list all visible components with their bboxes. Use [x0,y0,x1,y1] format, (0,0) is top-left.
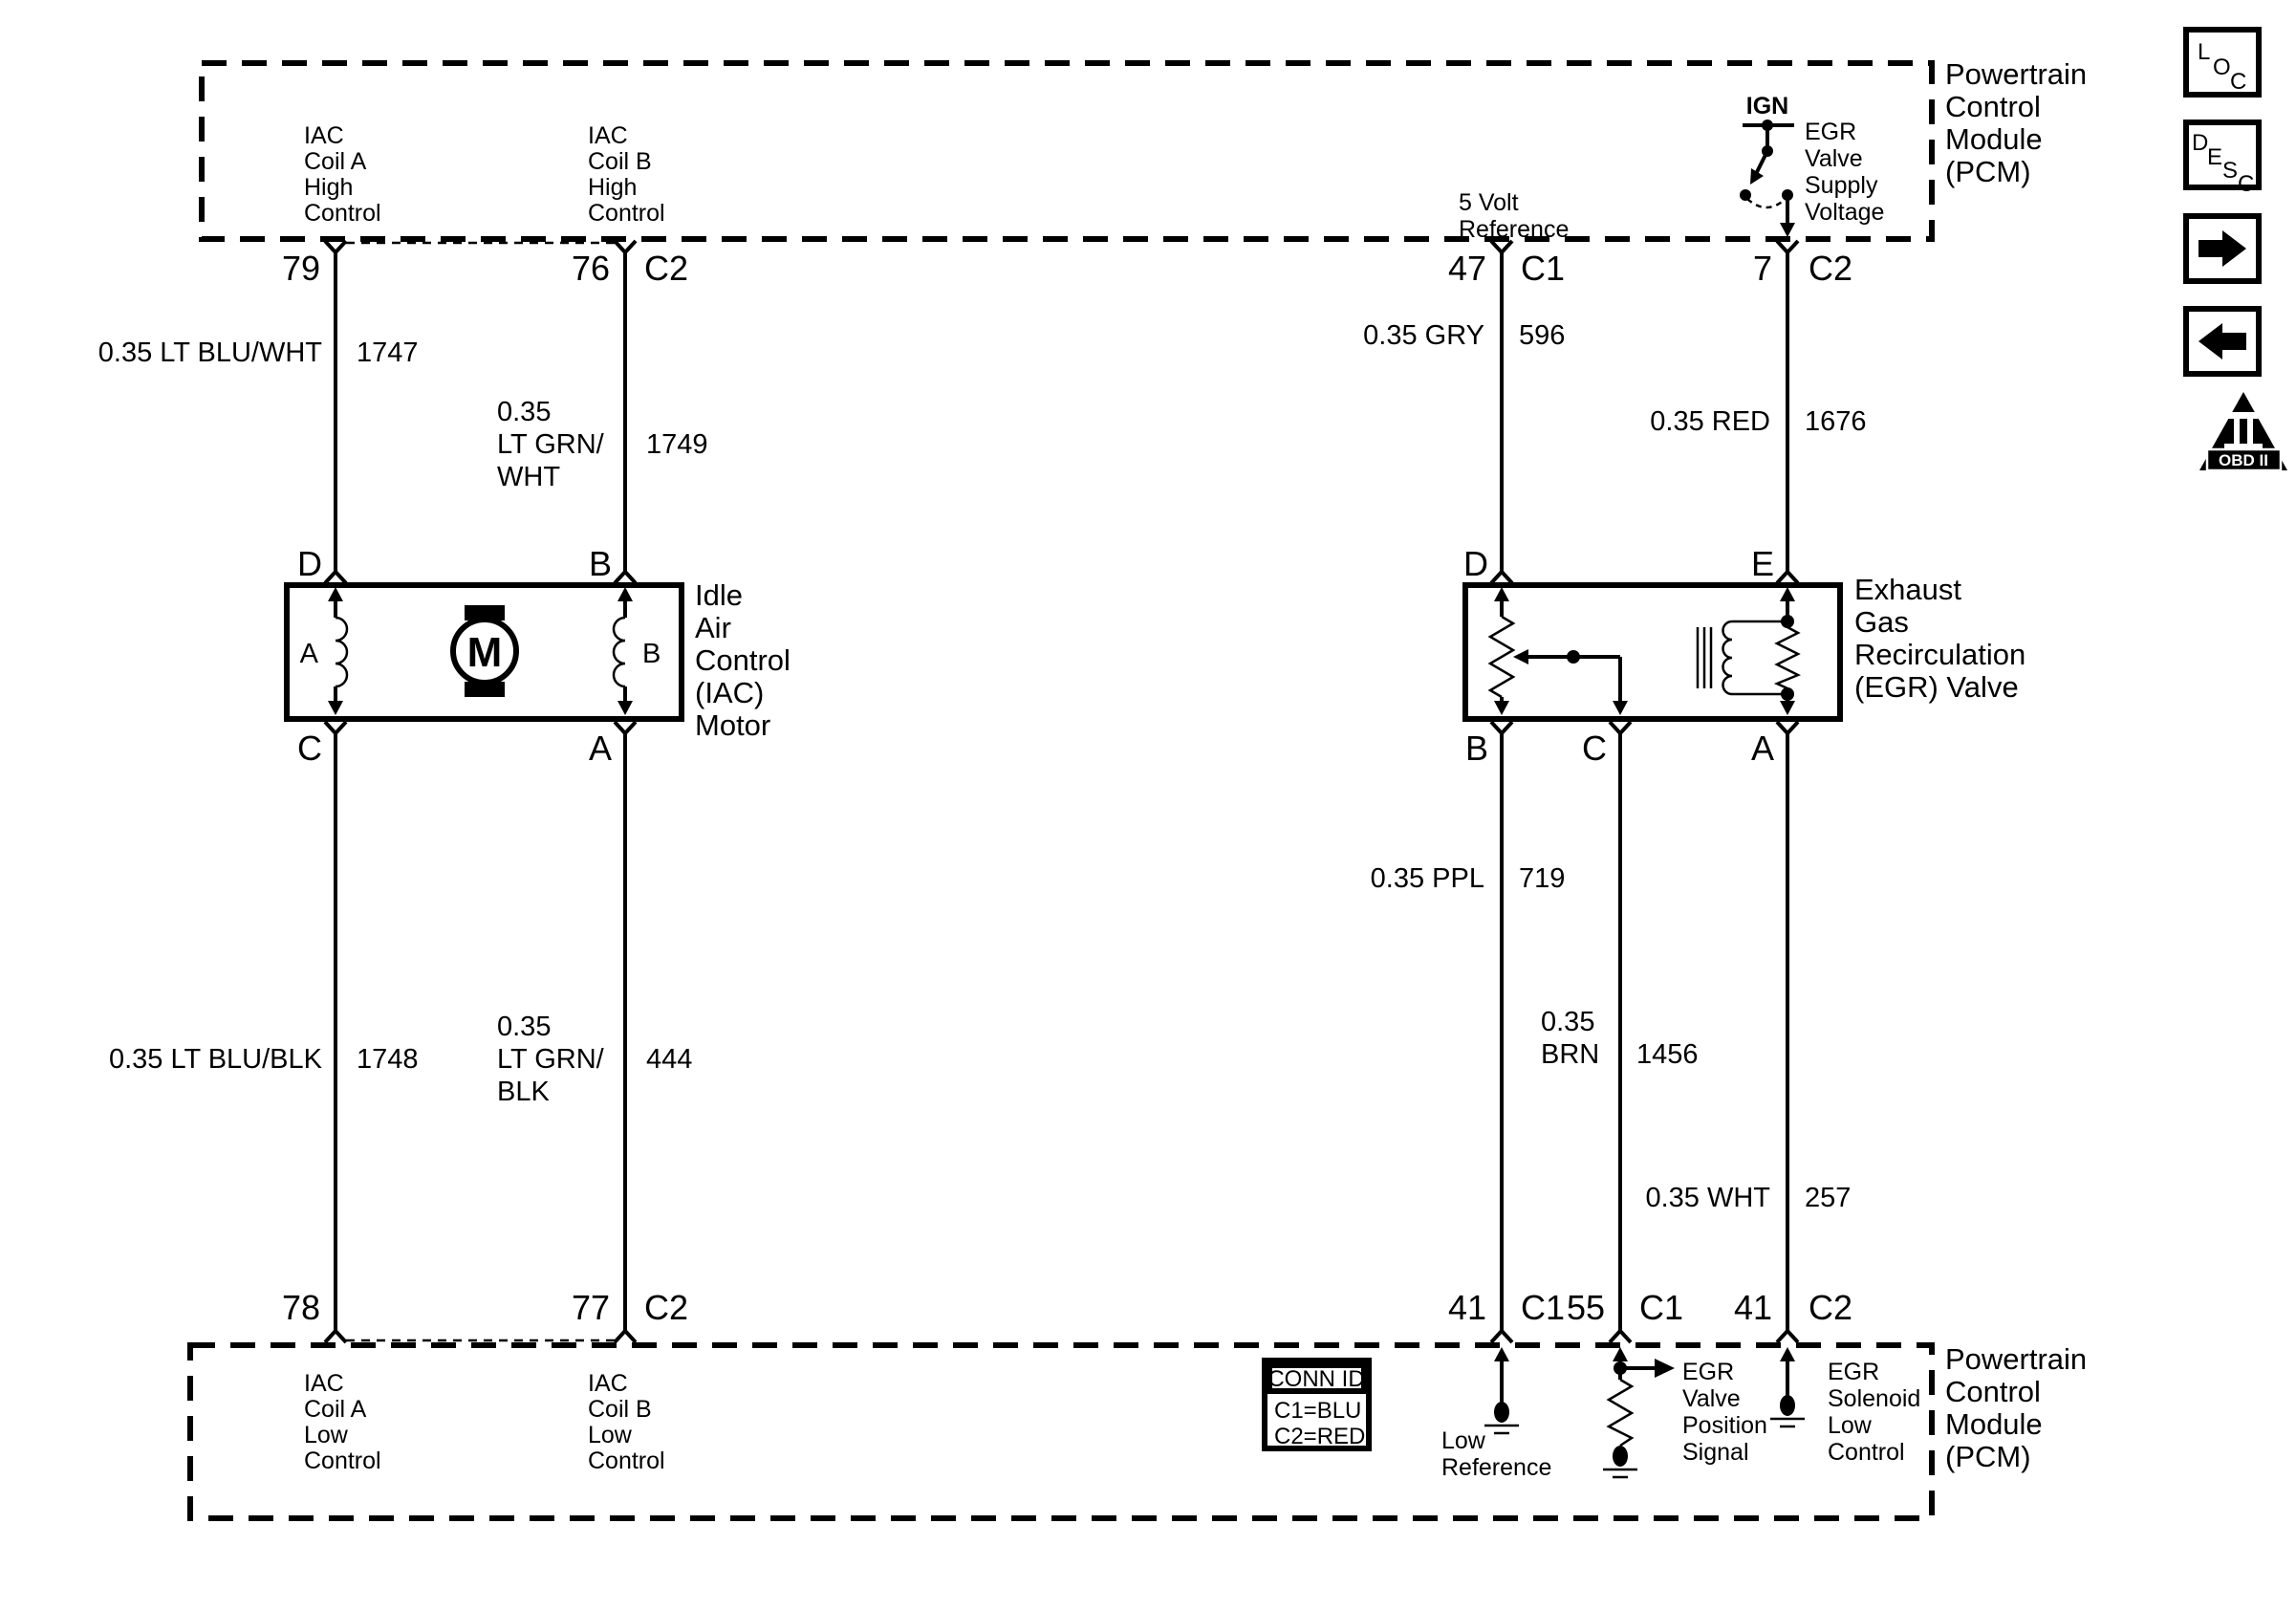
egr-valve-label: Exhaust Gas Recirculation (EGR) Valve [1854,573,2025,704]
connector-y [325,572,346,583]
wire-label-blu-wht: 0.35 LT BLU/WHT 1747 [98,337,419,368]
svg-text:C: C [2238,171,2254,197]
svg-text:0.35: 0.35 [497,1012,551,1042]
svg-text:E: E [2207,144,2222,170]
circuit-number: 1748 [357,1044,419,1075]
connector-y [325,722,346,733]
connector-y [615,722,636,733]
svg-text:Motor: Motor [695,708,770,742]
circuit-number: 1456 [1636,1039,1699,1070]
right-arrow-icon [2199,230,2246,267]
svg-text:High: High [588,174,637,201]
egr-valve-supply-voltage-label: EGR Valve Supply Voltage [1805,119,1884,226]
ground-dot [1780,1395,1795,1416]
pcm-top-pins: 79 76 C2 47 C1 7 C2 [282,241,1852,288]
svg-text:LT GRN/: LT GRN/ [497,429,605,460]
circuit-number: 257 [1805,1183,1851,1213]
svg-text:Coil B: Coil B [588,1396,652,1423]
connector-id: C1 [1521,1288,1565,1327]
iac-coil-b-high-control-label: IAC Coil B High Control [588,122,665,227]
down-arrowhead [1780,701,1795,715]
motor-letter: M [467,629,503,676]
svg-text:Control: Control [304,200,381,227]
pcm-top-module: Powertrain Control Module (PCM) IAC Coil… [202,57,2087,288]
svg-text:Supply: Supply [1805,172,1878,199]
wire-label-wht: 0.35 WHT 257 [1645,1183,1851,1213]
loc-button[interactable]: L O C [2186,30,2259,95]
wire-label-blu-blk: 0.35 LT BLU/BLK 1748 [109,1044,419,1075]
connector-id: C2 [644,249,688,288]
svg-text:0.35: 0.35 [497,397,551,427]
svg-text:BRN: BRN [1541,1039,1599,1070]
svg-text:S: S [2222,158,2238,184]
svg-text:Control: Control [695,643,791,677]
obd2-pillar-top [2226,412,2261,419]
connector-y [615,572,636,583]
connector-y [1777,572,1798,583]
svg-text:IAC: IAC [588,1370,628,1397]
pcm-bottom-label: Module [1945,1407,2043,1441]
pcm-top-label: Control [1945,90,2041,123]
connector-y [1610,722,1631,733]
solenoid-resistor [1777,627,1798,688]
pin-number: 78 [282,1288,320,1327]
svg-text:Low: Low [588,1422,633,1448]
circuit-number: 1747 [357,337,419,368]
coil-a-label: A [300,639,319,669]
ground-dot [1613,1446,1628,1467]
iac-coil-a-high-control-label: IAC Coil A High Control [304,122,381,227]
pcm-top-label: (PCM) [1945,155,2031,188]
svg-text:Reference: Reference [1459,216,1569,243]
wiring-diagram-page: Powertrain Control Module (PCM) IAC Coil… [0,0,2296,1611]
svg-text:5 Volt: 5 Volt [1459,189,1519,216]
pcm-bottom-module: 78 77 C2 41 C1 55 C1 41 C2 Powertrain Co… [190,1288,2087,1518]
svg-text:Idle: Idle [695,578,743,612]
circuit-number: 444 [646,1044,692,1075]
svg-text:Coil A: Coil A [304,1396,367,1423]
svg-text:Recirculation: Recirculation [1854,638,2025,671]
ign-switch-symbol: IGN [1740,93,1795,237]
svg-text:Coil A: Coil A [304,148,367,175]
svg-text:Low: Low [1828,1412,1873,1439]
svg-text:High: High [304,174,353,201]
obd2-badge: OBD II [2199,392,2287,470]
pin-letter: A [1751,729,1774,768]
switch-throw-arc [1747,199,1786,207]
coil-b-symbol [614,618,625,686]
harness-wires: 0.35 LT BLU/WHT 1747 0.35 LT GRN/ WHT 17… [98,252,1867,1331]
iac-motor-component: D B A M B C A Idle Air Control (IAC) Mot [287,544,791,768]
connector-id: C2 [1809,1288,1852,1327]
wiper-arrowhead [1513,649,1528,664]
pcm-bottom-label: Control [1945,1375,2041,1408]
svg-text:EGR: EGR [1682,1359,1734,1385]
svg-text:(IAC): (IAC) [695,676,764,709]
connector-y [1491,1331,1512,1342]
down-arrowhead [617,701,633,715]
connector-y [1777,1331,1798,1342]
svg-text:(EGR) Valve: (EGR) Valve [1854,670,2019,704]
svg-text:Control: Control [588,200,665,227]
connector-y [1610,1331,1631,1342]
svg-text:Low: Low [1441,1427,1486,1454]
svg-text:BLK: BLK [497,1077,550,1107]
ground-dot [1494,1402,1509,1423]
svg-text:Air: Air [695,611,731,644]
connector-y [615,241,636,252]
pin-number: 76 [572,249,610,288]
next-arrow-button[interactable] [2186,216,2259,281]
pin-number: 79 [282,249,320,288]
svg-text:LT GRN/: LT GRN/ [497,1044,605,1075]
low-reference-ground: Low Reference [1441,1347,1551,1481]
svg-text:Coil B: Coil B [588,148,652,175]
pin-number: 41 [1448,1288,1486,1327]
wire-label-red: 0.35 RED 1676 [1650,406,1866,437]
prev-arrow-button[interactable] [2186,309,2259,374]
connector-id: C2 [1809,249,1852,288]
iac-coil-a-low-control-label: IAC Coil A Low Control [304,1370,381,1474]
pcm-top-dashed-border [202,63,1932,239]
connector-y [325,1331,346,1342]
svg-text:Control: Control [304,1448,381,1474]
pin-letter: D [297,544,322,583]
pcm-bottom-label: (PCM) [1945,1440,2031,1473]
pin-letter: E [1751,544,1774,583]
conn-id-row: C1=BLU [1274,1398,1361,1424]
pin-letter: B [1465,729,1488,768]
pin-letter: C [1582,729,1607,768]
connector-y [1491,572,1512,583]
ign-label: IGN [1746,93,1788,120]
junction-dot [1567,650,1580,664]
svg-text:Gas: Gas [1854,605,1909,639]
down-arrowhead [1494,701,1509,715]
pcm-bottom-dashed-border [190,1345,1932,1518]
pin-letter: D [1463,544,1488,583]
obd2-pillar-leg [2234,419,2240,444]
svg-text:0.35 LT BLU/WHT: 0.35 LT BLU/WHT [98,337,323,368]
pcm-bottom-pins: 78 77 C2 41 C1 55 C1 41 C2 [282,1288,1852,1327]
circuit-number: 719 [1519,863,1565,894]
svg-text:IAC: IAC [304,122,344,149]
svg-text:0.35 GRY: 0.35 GRY [1363,320,1484,351]
svg-text:Signal: Signal [1682,1439,1749,1466]
solenoid-coil-symbol [1723,621,1733,694]
svg-text:EGR: EGR [1828,1359,1879,1385]
svg-text:D: D [2192,130,2208,156]
pcm-top-label: Module [1945,122,2043,156]
svg-text:0.35 RED: 0.35 RED [1650,406,1770,437]
pin-number: 7 [1753,249,1772,288]
pcm-top-label: Powertrain [1945,57,2087,91]
resistor-symbol [1609,1380,1632,1446]
circuit-number: 1749 [646,429,708,460]
obd2-label: OBD II [2219,451,2268,469]
circuit-number: 1676 [1805,406,1867,437]
pin-number: 55 [1567,1288,1605,1327]
svg-text:O: O [2213,54,2231,80]
svg-text:Position: Position [1682,1412,1767,1439]
svg-text:0.35 LT BLU/BLK: 0.35 LT BLU/BLK [109,1044,323,1075]
svg-text:Control: Control [588,1448,665,1474]
wire-label-ppl: 0.35 PPL 719 [1371,863,1566,894]
sidebar-toolbar: L O C D E S C OBD II [2186,30,2287,470]
conn-id-row: C2=RED [1274,1424,1365,1449]
connector-y [1491,722,1512,733]
five-volt-reference-label: 5 Volt Reference [1459,189,1569,243]
wire-label-grn-wht: 0.35 LT GRN/ WHT 1749 [497,397,708,492]
down-arrowhead [1780,223,1795,237]
pin-letter: A [589,729,612,768]
coil-b-label: B [642,639,661,669]
wire-label-gry: 0.35 GRY 596 [1363,320,1565,351]
switch-contact-dot [1740,189,1751,201]
svg-text:Valve: Valve [1682,1385,1741,1412]
left-arrow-icon [2199,323,2246,359]
egr-valve-component: D E B C A Exhaust [1463,544,2025,768]
svg-text:EGR: EGR [1805,119,1856,145]
connector-y [325,241,346,252]
down-arrowhead [328,701,343,715]
svg-text:WHT: WHT [497,462,560,492]
svg-text:IAC: IAC [588,122,628,149]
svg-text:IAC: IAC [304,1370,344,1397]
conn-id-header: CONN ID [1267,1366,1364,1392]
svg-text:Solenoid: Solenoid [1828,1385,1920,1412]
down-arrowhead [1613,701,1628,715]
svg-text:Valve: Valve [1805,145,1863,172]
svg-text:C: C [2230,69,2246,95]
svg-text:0.35 PPL: 0.35 PPL [1371,863,1484,894]
coil-a-symbol [336,618,347,686]
wire-label-grn-blk: 0.35 LT GRN/ BLK 444 [497,1012,692,1107]
potentiometer-resistor [1490,617,1513,697]
conn-id-table: CONN ID C1=BLU C2=RED [1265,1361,1369,1449]
svg-text:0.35: 0.35 [1541,1007,1594,1037]
egr-position-signal-circuit: EGR Valve Position Signal [1603,1347,1767,1477]
svg-text:Control: Control [1828,1439,1905,1466]
iac-motor-label: Idle Air Control (IAC) Motor [695,578,791,742]
connector-y [1777,722,1798,733]
pin-number: 41 [1734,1288,1772,1327]
svg-text:Reference: Reference [1441,1454,1551,1481]
circuit-number: 596 [1519,320,1565,351]
connector-id: C1 [1521,249,1565,288]
svg-text:L: L [2198,39,2210,65]
svg-text:0.35 WHT: 0.35 WHT [1645,1183,1770,1213]
svg-text:Exhaust: Exhaust [1854,573,1961,606]
pcm-bottom-label: Powertrain [1945,1342,2087,1376]
pin-letter: C [297,729,322,768]
egr-solenoid-low-ground: EGR Solenoid Low Control [1770,1347,1920,1466]
iac-coil-b-low-control-label: IAC Coil B Low Control [588,1370,665,1474]
svg-text:Voltage: Voltage [1805,199,1884,226]
connector-y [615,1331,636,1342]
connector-y [1777,241,1798,252]
pin-number: 77 [572,1288,610,1327]
pin-number: 47 [1448,249,1486,288]
right-arrowhead [1655,1359,1675,1378]
obd2-pillar-leg [2247,419,2253,444]
connector-id: C2 [644,1288,688,1327]
svg-text:Low: Low [304,1422,349,1448]
pin-letter: B [589,544,612,583]
connector-id: C1 [1639,1288,1683,1327]
switch-blade [1757,151,1767,172]
desc-button[interactable]: D E S C [2186,122,2259,197]
